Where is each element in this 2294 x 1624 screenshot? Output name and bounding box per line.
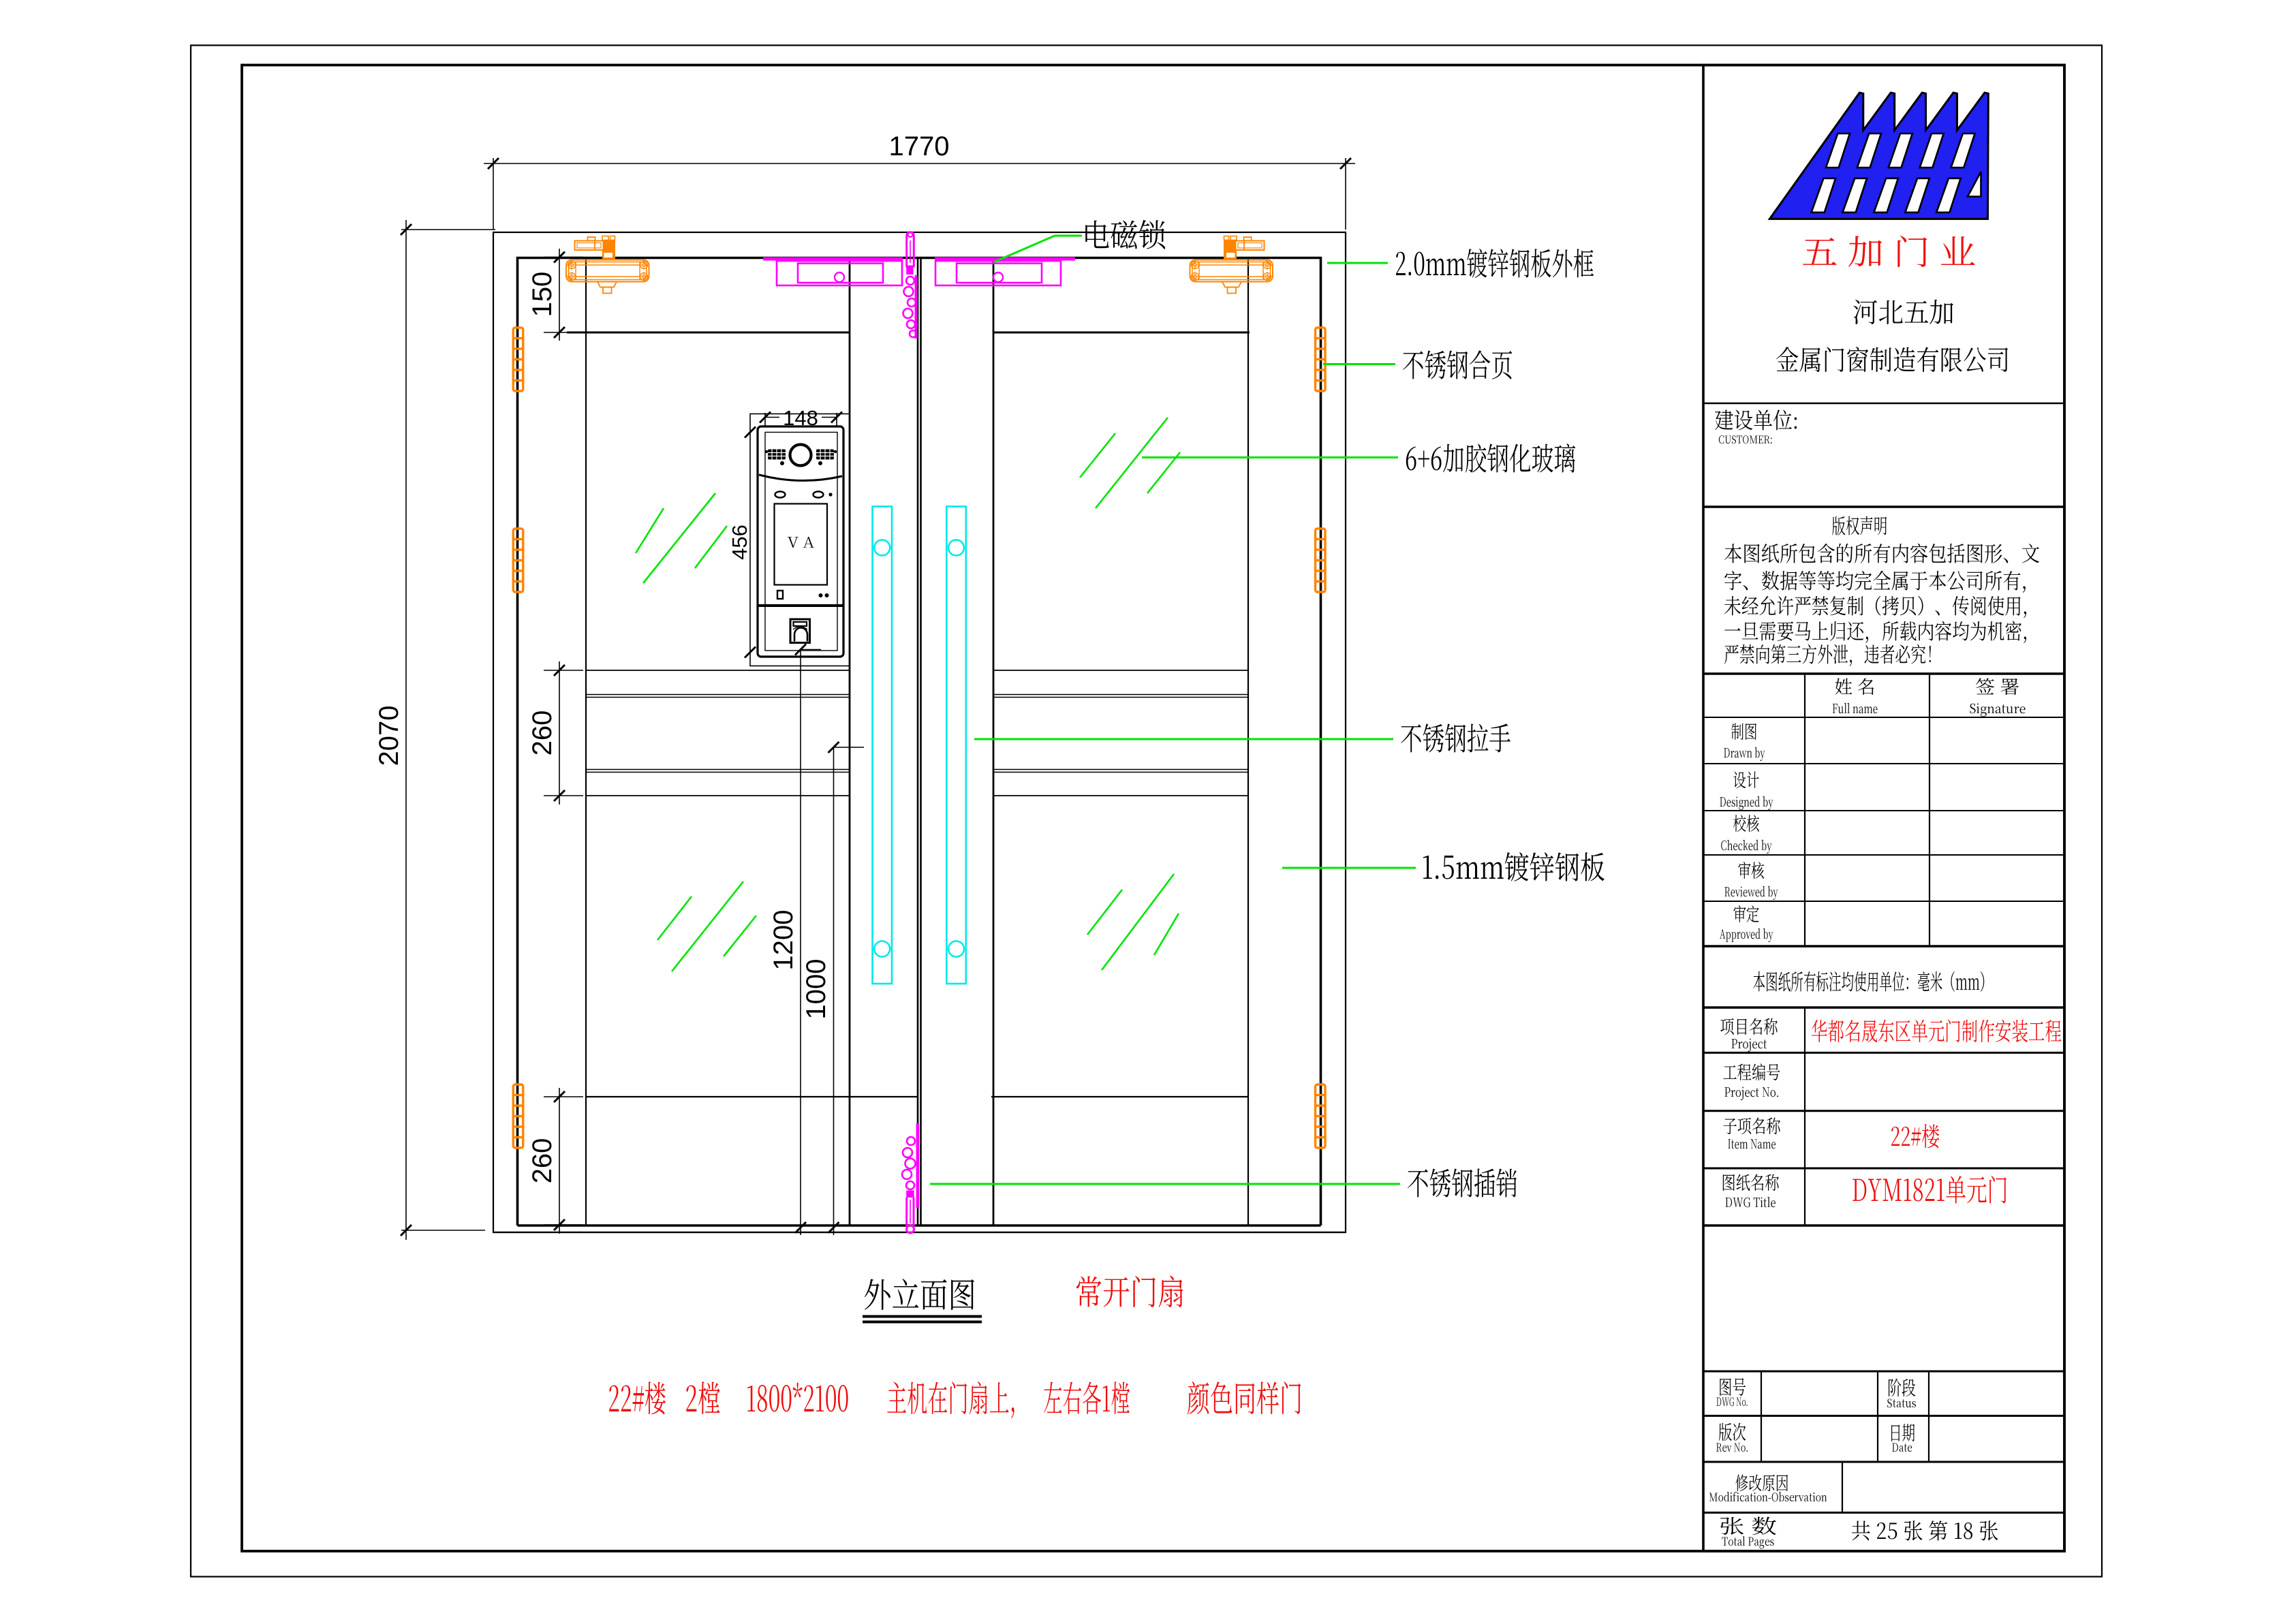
svg-text:Checked by: Checked by [1721,836,1772,854]
svg-text:外立面图: 外立面图 [863,1268,976,1317]
svg-text:电磁锁: 电磁锁 [1082,211,1166,256]
svg-text:制图: 制图 [1731,717,1758,744]
svg-text:Full name: Full name [1832,699,1878,717]
svg-text:常开门扇: 常开门扇 [1075,1266,1185,1315]
svg-text:1800*2100: 1800*2100 [746,1371,849,1422]
svg-text:456: 456 [728,525,751,560]
svg-text:主机在门扇上，: 主机在门扇上， [886,1371,1030,1422]
svg-text:不锈钢合页: 不锈钢合页 [1402,341,1513,386]
svg-text:Date: Date [1892,1438,1912,1455]
svg-text:Status: Status [1887,1394,1917,1411]
svg-text:V A: V A [787,531,814,552]
svg-text:2.0mm镀锌钢板外框: 2.0mm镀锌钢板外框 [1395,240,1594,285]
svg-text:1.5mm镀锌钢板: 1.5mm镀锌钢板 [1421,843,1605,888]
svg-text:DWG Title: DWG Title [1725,1193,1776,1211]
svg-text:260: 260 [527,1138,557,1184]
svg-text:本图纸所有标注均使用单位：毫米（mm）: 本图纸所有标注均使用单位：毫米（mm） [1753,965,1993,997]
svg-text:设计: 设计 [1733,766,1760,792]
svg-text:Signature: Signature [1969,699,2026,717]
svg-text:图纸名称: 图纸名称 [1722,1168,1780,1195]
svg-text:审核: 审核 [1738,856,1765,883]
svg-text:河北五加: 河北五加 [1853,292,1955,330]
svg-text:Project: Project [1731,1034,1767,1052]
svg-text:姓 名: 姓 名 [1835,672,1876,699]
svg-text:148: 148 [783,406,818,430]
svg-text:金属门窗制造有限公司: 金属门窗制造有限公司 [1776,339,2010,378]
svg-text:校核: 校核 [1733,809,1760,836]
svg-text:Project No.: Project No. [1724,1082,1780,1101]
svg-text:6+6加胶钢化玻璃: 6+6加胶钢化玻璃 [1405,435,1576,480]
svg-text:签 署: 签 署 [1975,672,2019,699]
svg-text:Reviewed by: Reviewed by [1724,882,1778,901]
svg-text:颜色同样门: 颜色同样门 [1187,1371,1303,1422]
svg-text:建设单位:: 建设单位: [1714,403,1799,435]
svg-text:不锈钢拉手: 不锈钢拉手 [1400,715,1511,760]
svg-text:Modification-Observation: Modification-Observation [1709,1488,1827,1505]
svg-text:1000: 1000 [801,959,831,1020]
svg-text:1770: 1770 [889,131,950,161]
svg-text:2070: 2070 [374,706,404,766]
svg-text:DWG No.: DWG No. [1716,1392,1748,1409]
svg-text:严禁向第三方外泄，违者必究！: 严禁向第三方外泄，违者必究！ [1724,638,1942,668]
svg-text:1200: 1200 [769,910,799,971]
svg-text:CUSTOMER:: CUSTOMER: [1718,431,1773,447]
svg-text:Total Pages: Total Pages [1722,1532,1774,1549]
svg-text:版权声明: 版权声明 [1832,510,1888,540]
svg-text:不锈钢插销: 不锈钢插销 [1407,1159,1518,1204]
svg-text:Designed by: Designed by [1720,792,1773,811]
svg-text:工程编号: 工程编号 [1723,1058,1781,1084]
svg-text:审定: 审定 [1733,900,1760,926]
svg-text:2樘: 2樘 [685,1371,721,1422]
svg-text:本图纸所包含的所有内容包括图形、文: 本图纸所包含的所有内容包括图形、文 [1724,537,2040,567]
svg-text:150: 150 [527,272,557,317]
svg-text:左右各1樘: 左右各1樘 [1043,1371,1130,1422]
svg-text:Approved by: Approved by [1720,924,1773,943]
svg-text:Rev No.: Rev No. [1716,1438,1749,1455]
svg-text:五 加 门 业: 五 加 门 业 [1801,225,1976,275]
svg-text:Item Name: Item Name [1728,1134,1776,1153]
svg-text:Drawn by: Drawn by [1724,743,1765,762]
svg-text:260: 260 [527,710,557,756]
svg-text:华都名晟东区单元门制作安装工程: 华都名晟东区单元门制作安装工程 [1811,1013,2062,1048]
svg-text:DYM1821单元门: DYM1821单元门 [1852,1166,2009,1210]
svg-text:22#楼: 22#楼 [608,1371,666,1422]
svg-text:22#楼: 22#楼 [1890,1116,1940,1153]
svg-text:共 25 张 第 18 张: 共 25 张 第 18 张 [1851,1514,1999,1546]
